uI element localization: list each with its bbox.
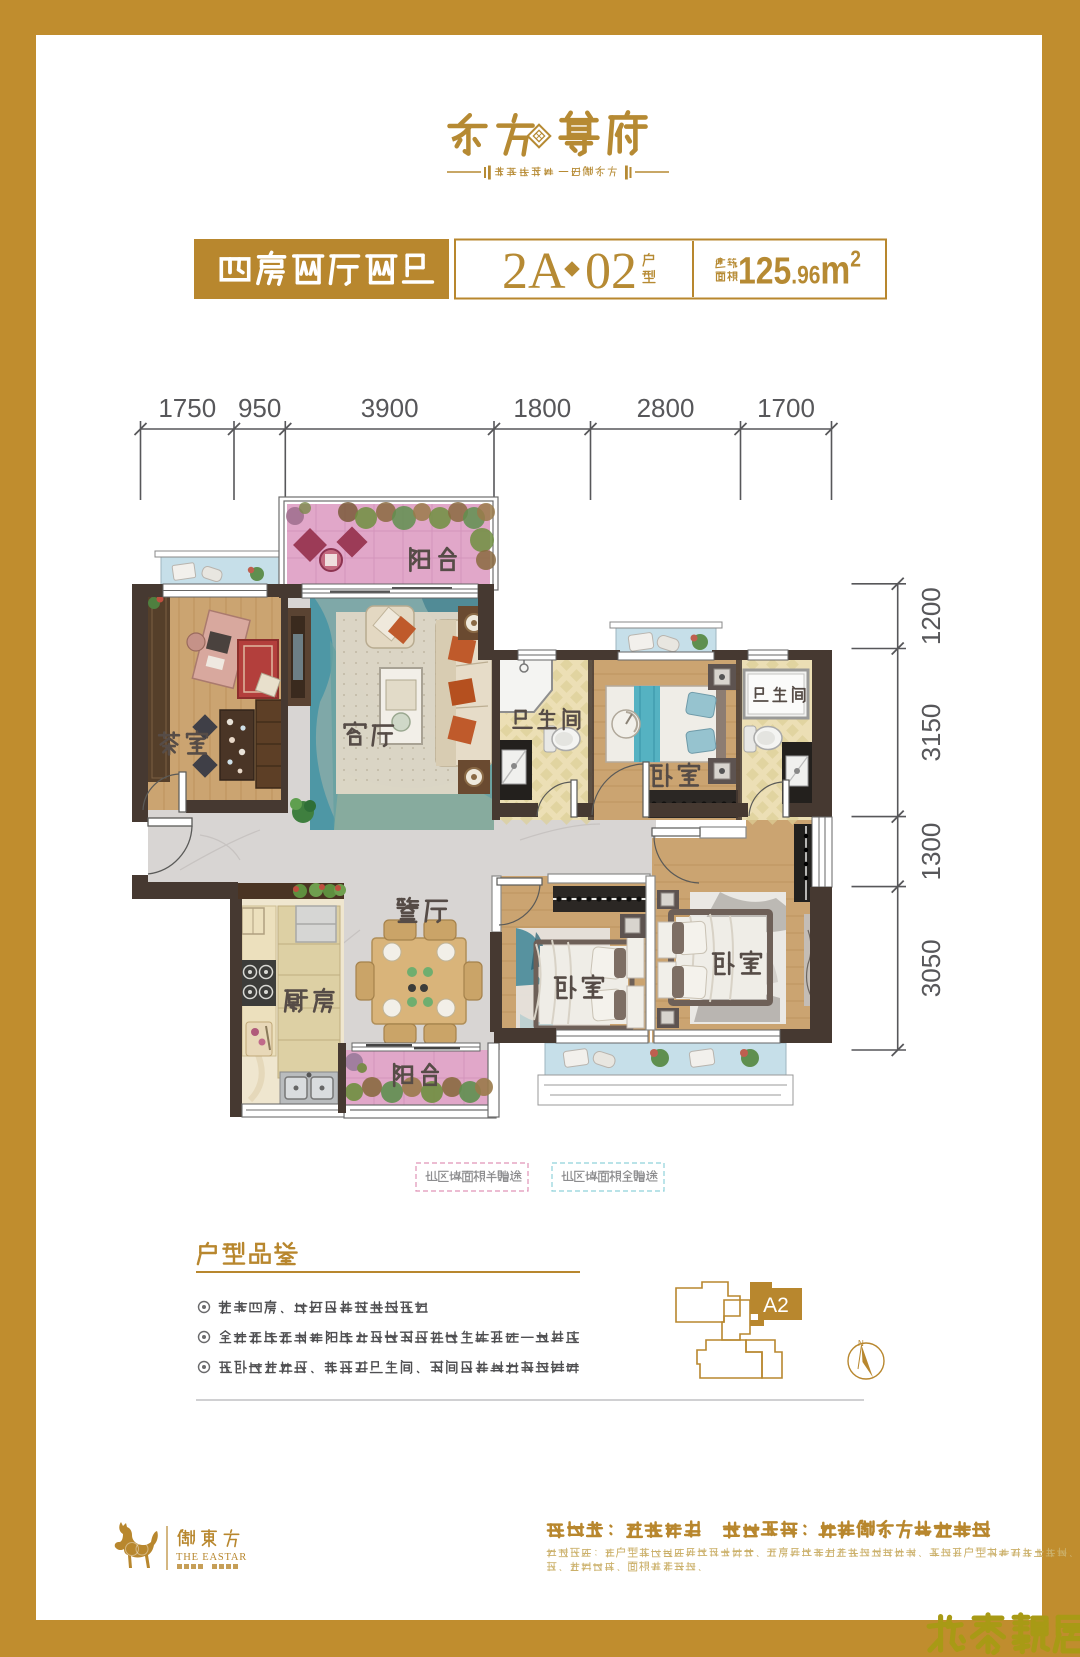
svg-text:950: 950	[238, 393, 281, 423]
svg-text:02: 02	[585, 243, 637, 300]
svg-text:1200: 1200	[916, 587, 946, 645]
svg-text:A2: A2	[763, 1294, 789, 1317]
svg-text:N: N	[858, 1339, 864, 1348]
svg-text:THE EASTAR: THE EASTAR	[176, 1552, 247, 1563]
svg-text:3900: 3900	[361, 393, 419, 423]
svg-text:3050: 3050	[916, 939, 946, 997]
svg-text:3150: 3150	[916, 704, 946, 762]
svg-text:1800: 1800	[513, 393, 571, 423]
svg-text:1300: 1300	[916, 823, 946, 881]
svg-text:2800: 2800	[637, 393, 695, 423]
svg-text:1750: 1750	[158, 393, 216, 423]
svg-text:1700: 1700	[757, 393, 815, 423]
svg-text:2A: 2A	[502, 243, 566, 300]
